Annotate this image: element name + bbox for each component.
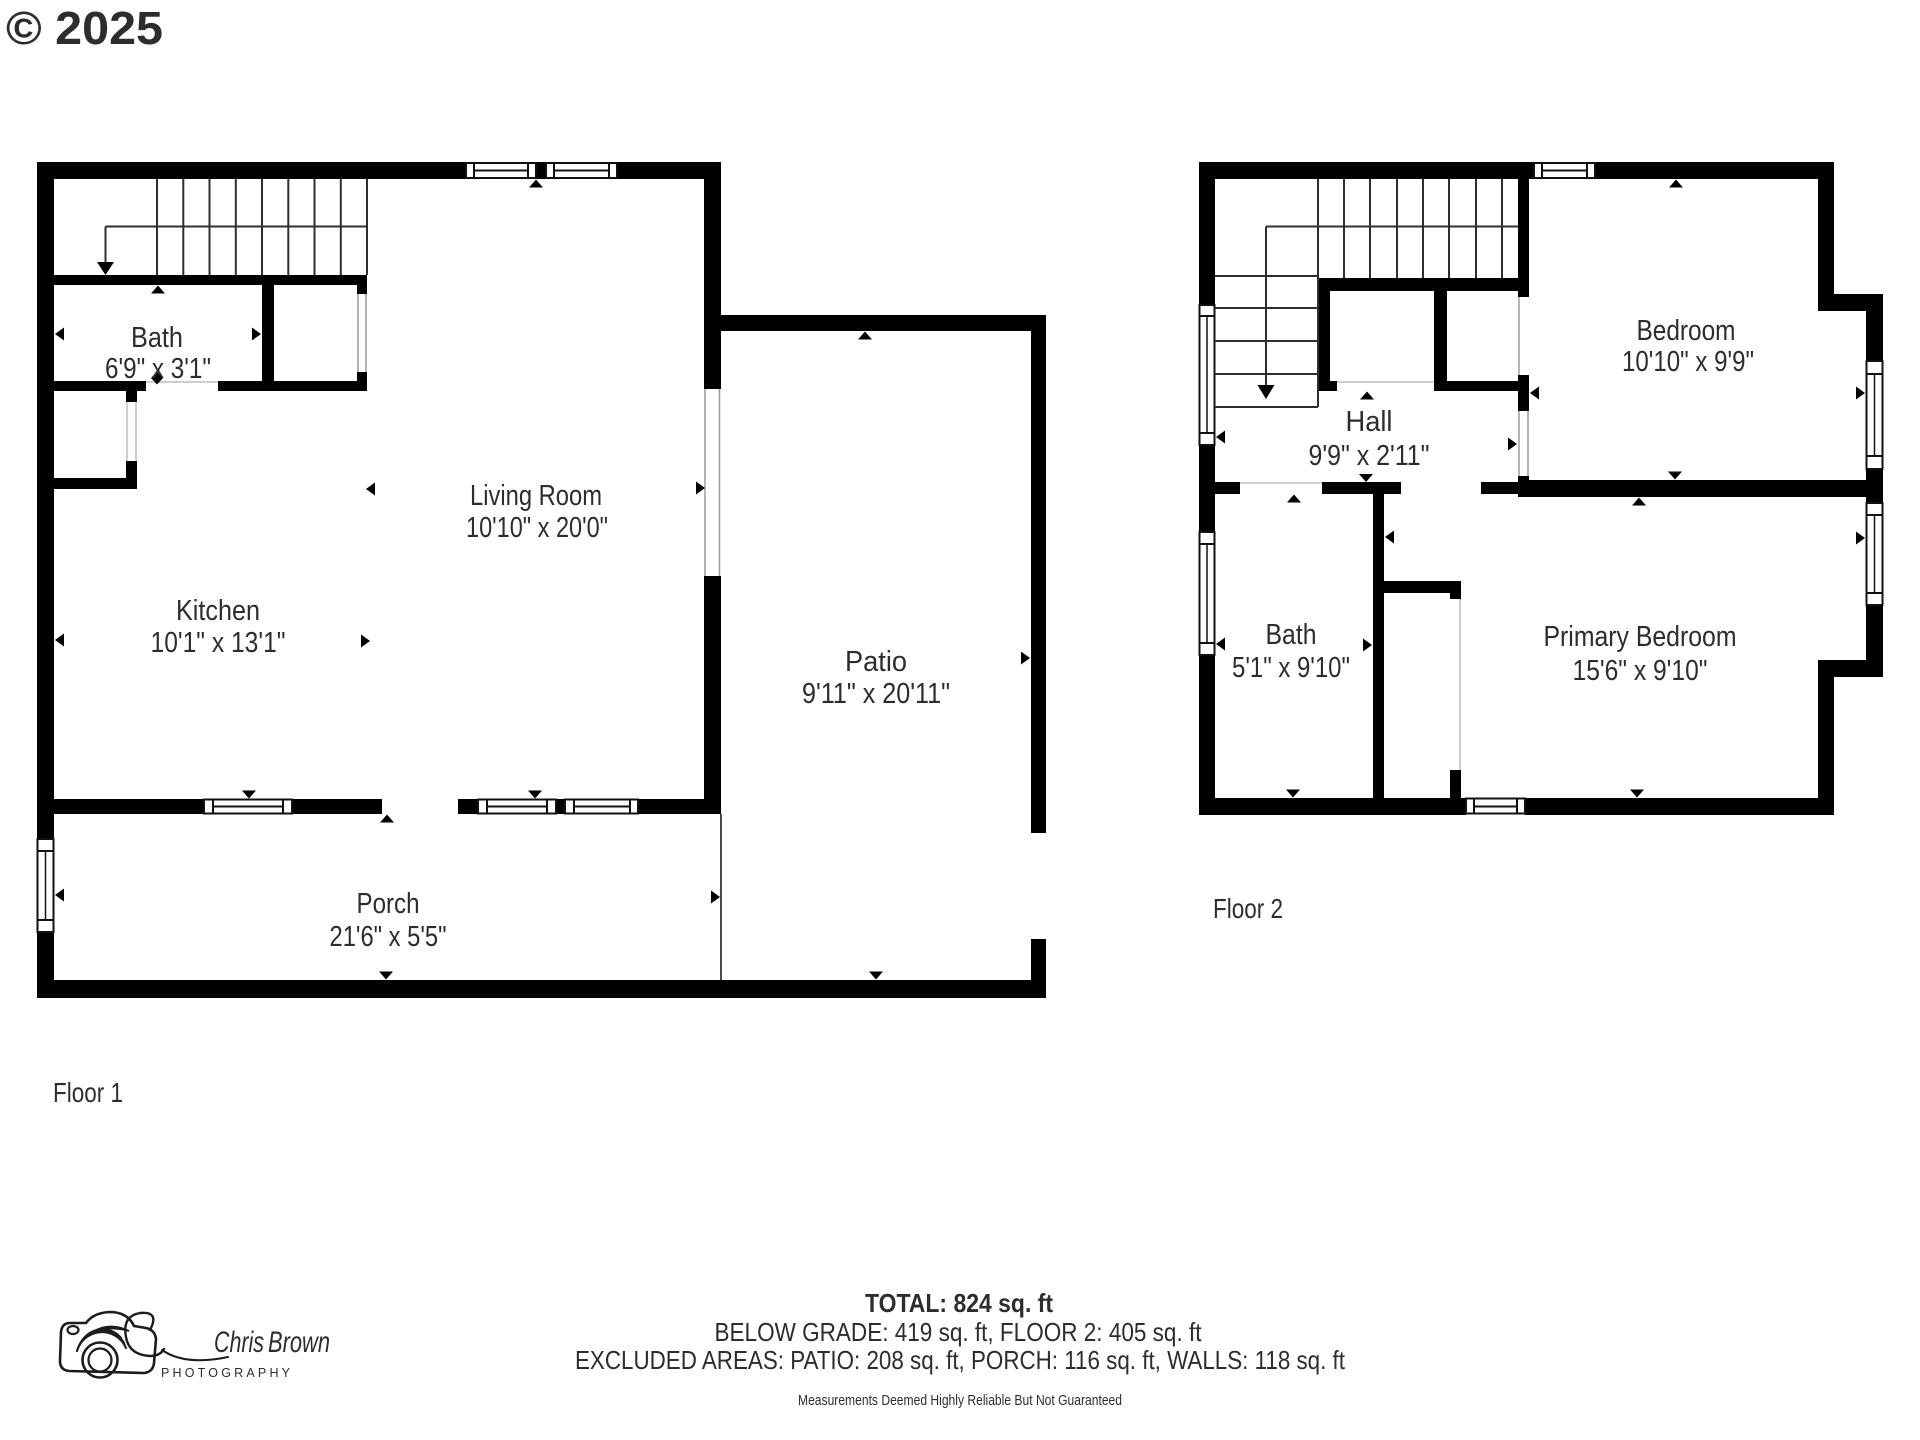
svg-text:21'6" x 5'5": 21'6" x 5'5"	[330, 921, 447, 953]
svg-text:9'9" x 2'11": 9'9" x 2'11"	[1309, 440, 1430, 472]
svg-text:BELOW GRADE: 419 sq. ft, FLOOR: BELOW GRADE: 419 sq. ft, FLOOR 2: 405 sq…	[715, 1317, 1203, 1347]
svg-text:5'1" x 9'10": 5'1" x 9'10"	[1232, 652, 1350, 684]
svg-text:10'1" x 13'1": 10'1" x 13'1"	[151, 627, 286, 659]
svg-text:Living Room: Living Room	[470, 480, 602, 512]
svg-text:EXCLUDED AREAS: PATIO: 208 sq.: EXCLUDED AREAS: PATIO: 208 sq. ft, PORCH…	[575, 1345, 1346, 1375]
svg-text:Floor 1: Floor 1	[53, 1077, 123, 1108]
svg-text:Chris: Chris	[214, 1326, 264, 1359]
svg-text:© 2025: © 2025	[6, 2, 163, 54]
svg-text:10'10" x 9'9": 10'10" x 9'9"	[1622, 346, 1754, 378]
svg-text:Measurements Deemed Highly Rel: Measurements Deemed Highly Reliable But …	[798, 1392, 1122, 1409]
svg-text:Porch: Porch	[357, 888, 420, 920]
svg-text:10'10" x 20'0": 10'10" x 20'0"	[466, 512, 608, 544]
svg-text:PHOTOGRAPHY: PHOTOGRAPHY	[161, 1366, 293, 1380]
svg-text:Primary Bedroom: Primary Bedroom	[1544, 621, 1737, 653]
svg-text:Kitchen: Kitchen	[176, 595, 260, 627]
svg-text:Hall: Hall	[1346, 406, 1393, 438]
svg-text:Patio: Patio	[845, 646, 907, 678]
svg-text:Bath: Bath	[1266, 619, 1317, 651]
svg-text:6'9" x 3'1": 6'9" x 3'1"	[105, 353, 211, 385]
svg-text:Bedroom: Bedroom	[1637, 315, 1736, 347]
svg-text:9'11" x 20'11": 9'11" x 20'11"	[802, 678, 950, 710]
svg-text:Floor 2: Floor 2	[1213, 893, 1283, 924]
svg-text:15'6" x 9'10": 15'6" x 9'10"	[1573, 655, 1708, 687]
svg-text:Bath: Bath	[131, 322, 183, 354]
svg-text:TOTAL: 824 sq. ft: TOTAL: 824 sq. ft	[865, 1288, 1053, 1318]
svg-text:Brown: Brown	[268, 1326, 330, 1359]
